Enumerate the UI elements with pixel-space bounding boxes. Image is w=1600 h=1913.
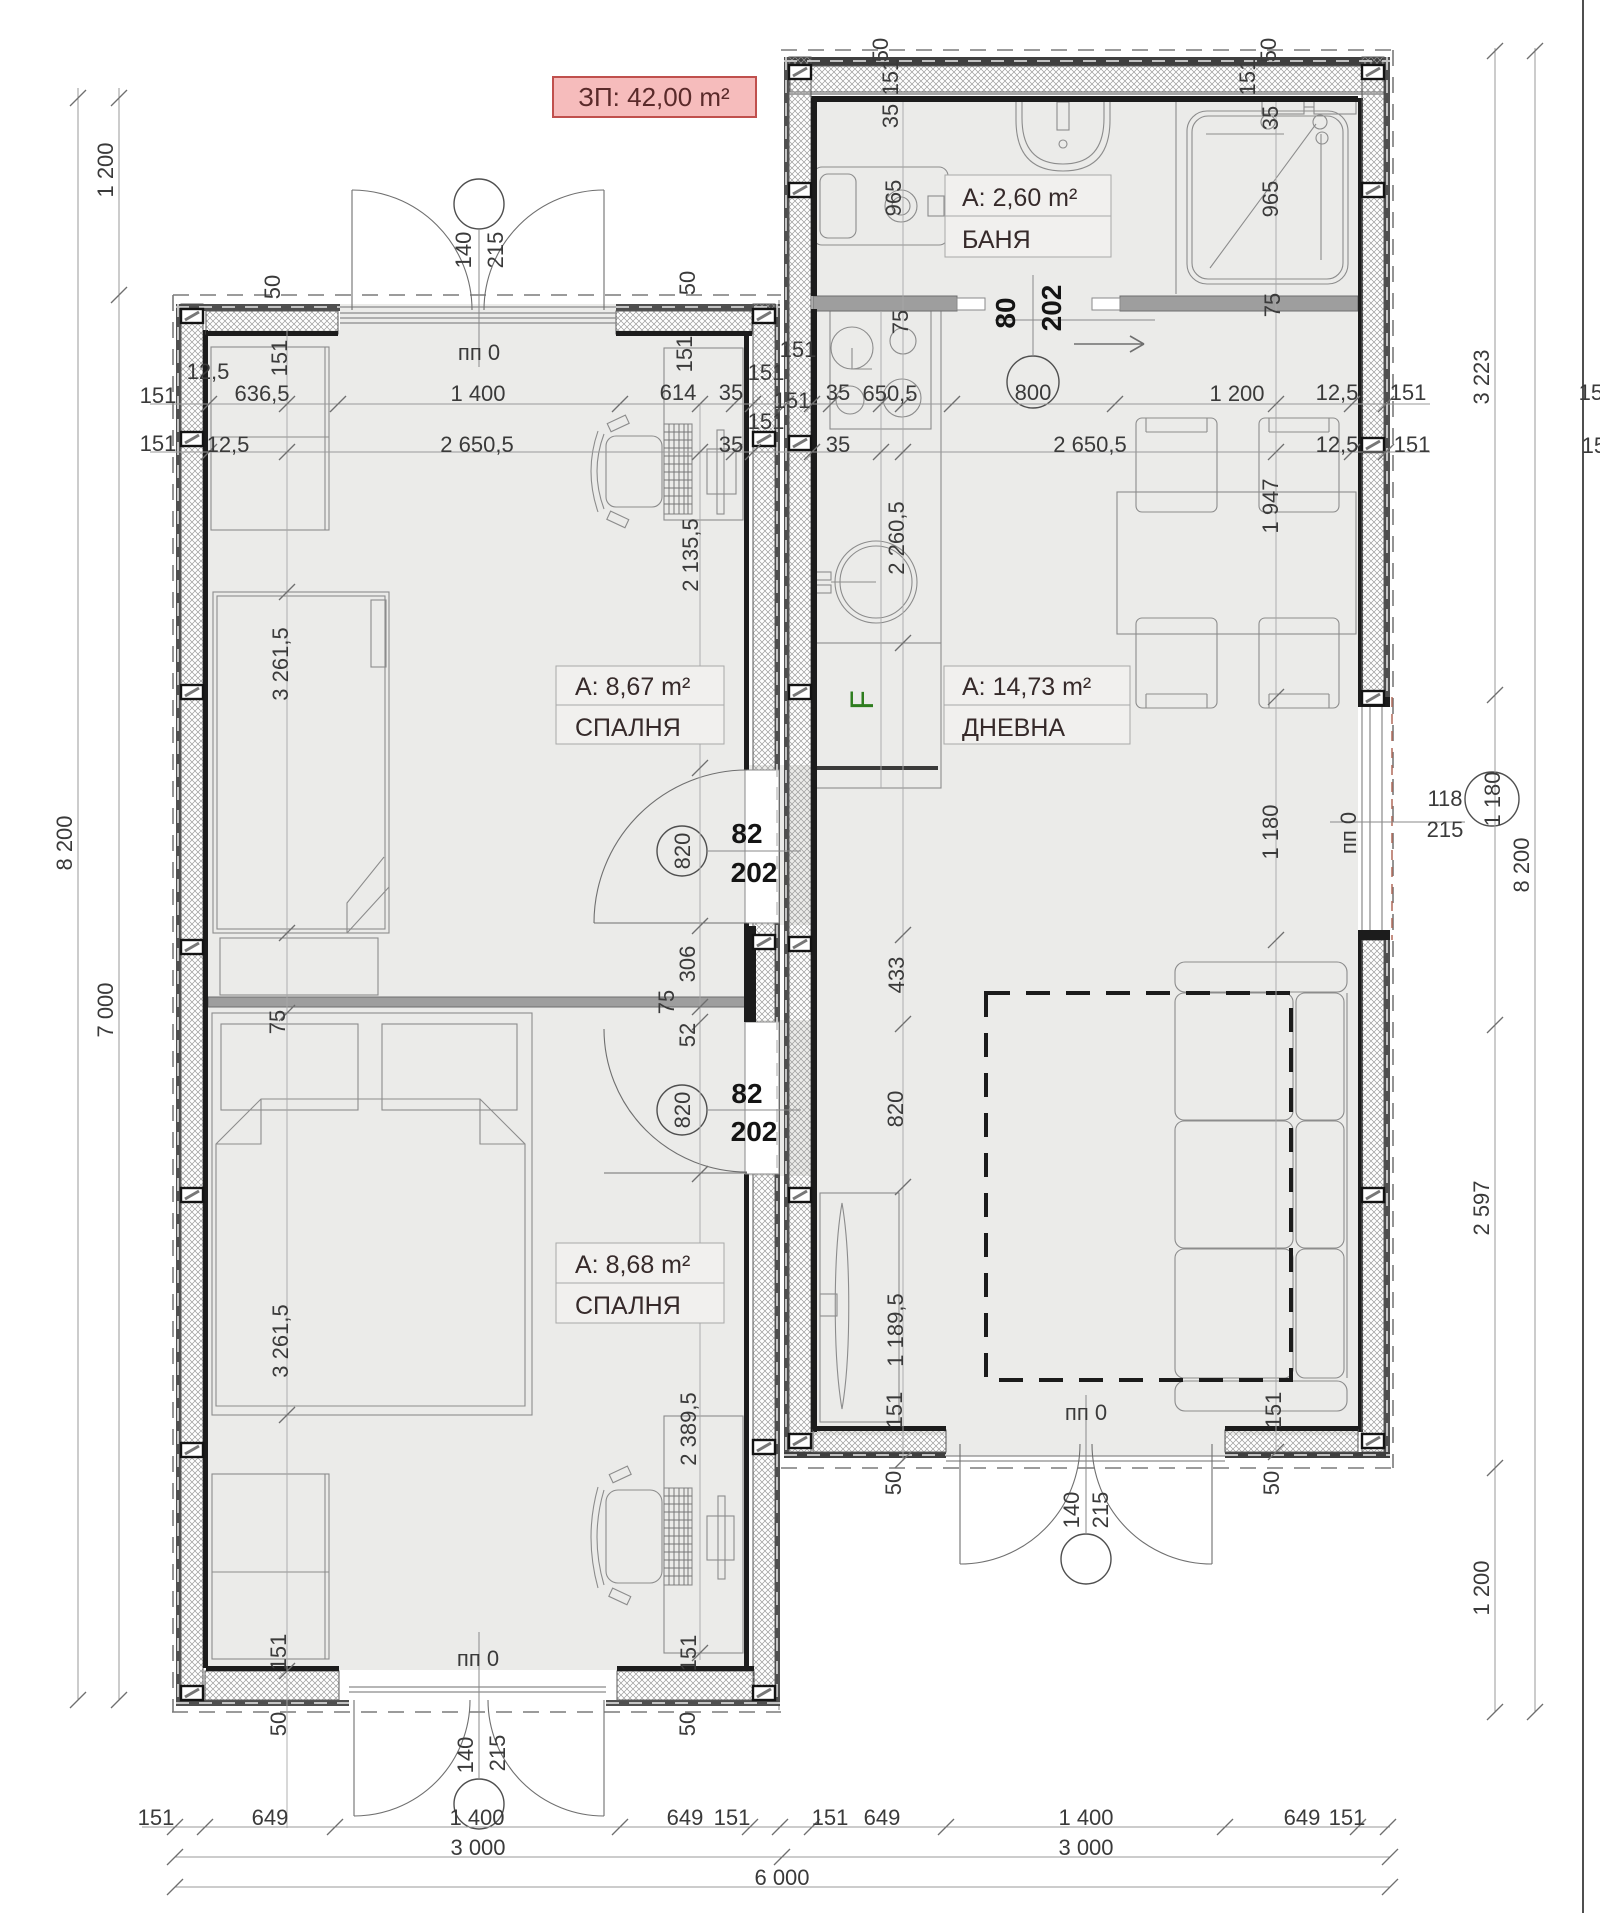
svg-text:151: 151 [1394,432,1431,457]
svg-text:433: 433 [884,957,909,994]
svg-text:2 597: 2 597 [1469,1180,1494,1235]
svg-text:118: 118 [1427,786,1462,811]
svg-text:1 180: 1 180 [1258,804,1283,859]
svg-text:649: 649 [1284,1805,1321,1830]
svg-text:75: 75 [654,990,679,1014]
svg-text:800: 800 [1015,380,1052,405]
svg-text:8 200: 8 200 [1509,837,1534,892]
svg-text:3 000: 3 000 [1058,1835,1113,1860]
svg-text:A: 8,67 m²: A: 8,67 m² [575,673,690,701]
svg-text:649: 649 [864,1805,901,1830]
svg-text:820: 820 [670,1092,695,1129]
svg-text:3 223: 3 223 [1469,349,1494,404]
svg-text:965: 965 [1258,181,1283,218]
svg-text:820: 820 [670,833,695,870]
svg-text:636,5: 636,5 [234,381,289,406]
svg-text:35: 35 [719,432,743,457]
svg-text:151: 151 [267,340,292,377]
svg-text:СПАЛНЯ: СПАЛНЯ [575,714,681,742]
svg-text:1 200: 1 200 [93,142,118,197]
svg-text:35: 35 [826,380,850,405]
svg-text:215: 215 [485,1735,510,1772]
svg-text:215: 215 [1427,817,1464,842]
svg-text:140: 140 [453,1737,478,1774]
svg-text:35: 35 [826,432,850,457]
svg-text:306: 306 [675,946,700,983]
svg-text:1 400: 1 400 [450,381,505,406]
svg-text:7 000: 7 000 [93,982,118,1037]
svg-text:2 650,5: 2 650,5 [1053,432,1126,457]
svg-text:50: 50 [881,1471,906,1495]
svg-text:151: 151 [748,360,785,385]
svg-text:52: 52 [675,1023,700,1047]
svg-text:649: 649 [252,1805,289,1830]
svg-text:1 400: 1 400 [1058,1805,1113,1830]
svg-text:БАНЯ: БАНЯ [962,226,1031,254]
svg-text:3 261,5: 3 261,5 [268,1304,293,1377]
svg-text:151: 151 [1579,380,1600,405]
svg-text:151: 151 [1582,433,1600,458]
svg-text:151: 151 [780,337,817,362]
svg-text:3 000: 3 000 [450,1835,505,1860]
svg-text:82: 82 [731,1078,762,1109]
svg-text:151: 151 [676,1635,701,1672]
svg-text:151: 151 [878,59,903,96]
svg-text:35: 35 [1258,106,1283,130]
svg-text:140: 140 [1059,1492,1084,1529]
svg-text:151: 151 [714,1805,751,1830]
svg-text:50: 50 [675,271,700,295]
svg-text:СПАЛНЯ: СПАЛНЯ [575,1292,681,1320]
svg-text:820: 820 [883,1091,908,1128]
svg-text:614: 614 [660,380,697,405]
svg-text:80: 80 [990,297,1021,328]
svg-text:35: 35 [719,380,743,405]
svg-text:1 200: 1 200 [1469,1560,1494,1615]
svg-text:650,5: 650,5 [862,381,917,406]
svg-text:пп 0: пп 0 [1336,812,1361,854]
svg-text:151: 151 [266,1634,291,1671]
svg-text:1 400: 1 400 [449,1805,504,1830]
svg-text:140: 140 [451,232,476,269]
svg-text:12,5: 12,5 [1316,432,1359,457]
svg-text:50: 50 [266,1712,291,1736]
svg-text:ЗП: 42,00 m²: ЗП: 42,00 m² [578,82,730,112]
svg-text:75: 75 [888,310,913,334]
svg-text:6 000: 6 000 [754,1865,809,1890]
svg-text:35: 35 [878,104,903,128]
svg-text:1 189,5: 1 189,5 [883,1293,908,1366]
svg-text:ДНЕВНА: ДНЕВНА [962,714,1065,742]
svg-text:202: 202 [731,1116,778,1147]
svg-text:F: F [844,690,880,710]
svg-text:A: 2,60 m²: A: 2,60 m² [962,184,1077,212]
svg-text:A: 8,68 m²: A: 8,68 m² [575,1251,690,1279]
svg-text:75: 75 [1260,293,1285,317]
svg-text:151: 151 [672,336,697,373]
svg-text:50: 50 [260,275,285,299]
svg-text:пп 0: пп 0 [1065,1400,1107,1425]
svg-text:215: 215 [1088,1492,1113,1529]
svg-text:12,5: 12,5 [207,432,250,457]
svg-text:151: 151 [1261,1392,1286,1429]
svg-text:151: 151 [748,409,785,434]
svg-text:12,5: 12,5 [1316,380,1359,405]
svg-text:215: 215 [483,232,508,269]
svg-text:A: 14,73 m²: A: 14,73 m² [962,673,1091,701]
svg-text:151: 151 [1235,59,1260,96]
svg-text:пп 0: пп 0 [457,1646,499,1671]
svg-text:75: 75 [265,1010,290,1034]
svg-text:2 260,5: 2 260,5 [884,501,909,574]
svg-text:50: 50 [675,1712,700,1736]
svg-text:2 135,5: 2 135,5 [678,518,703,591]
svg-text:50: 50 [868,38,893,62]
svg-text:202: 202 [731,857,778,888]
svg-text:50: 50 [1256,38,1281,62]
svg-text:1 180: 1 180 [1480,771,1505,826]
svg-text:2 650,5: 2 650,5 [440,432,513,457]
svg-text:8 200: 8 200 [52,815,77,870]
svg-text:151: 151 [140,431,177,456]
svg-text:965: 965 [881,180,906,217]
svg-text:82: 82 [731,818,762,849]
svg-text:151: 151 [1329,1805,1366,1830]
svg-text:151: 151 [882,1392,907,1429]
svg-text:50: 50 [1259,1471,1284,1495]
svg-text:151: 151 [138,1805,175,1830]
svg-text:пп 0: пп 0 [458,340,500,365]
svg-text:649: 649 [667,1805,704,1830]
svg-text:2 389,5: 2 389,5 [676,1392,701,1465]
svg-text:151: 151 [140,383,177,408]
svg-text:1 947: 1 947 [1258,478,1283,533]
svg-text:202: 202 [1036,285,1067,332]
svg-text:3 261,5: 3 261,5 [268,627,293,700]
svg-text:1 200: 1 200 [1209,381,1264,406]
svg-text:12,5: 12,5 [187,359,230,384]
svg-text:151: 151 [1390,380,1427,405]
svg-text:151: 151 [812,1805,849,1830]
